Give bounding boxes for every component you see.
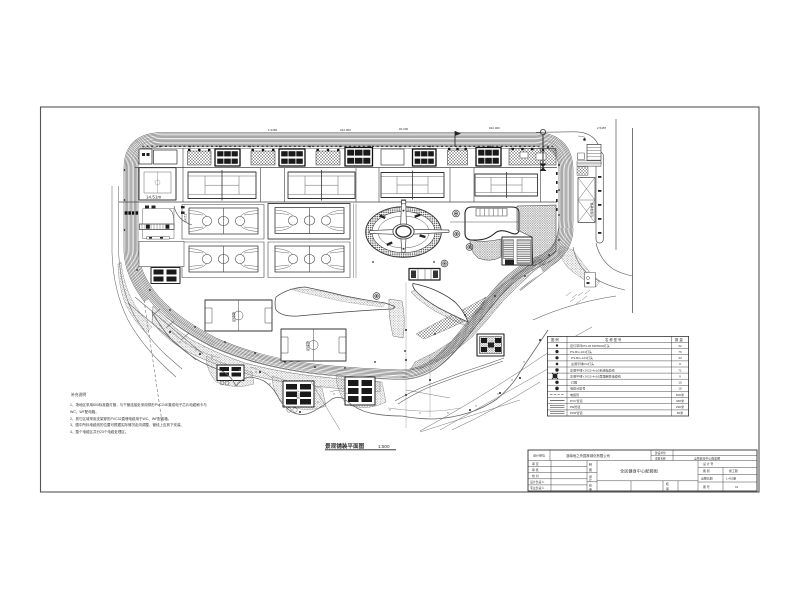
- svg-text:施工图: 施工图: [729, 468, 738, 473]
- svg-text:PE管道: PE管道: [570, 404, 580, 409]
- svg-text:出图日期: 出图日期: [701, 476, 713, 481]
- svg-text:名 称 型 号: 名 称 型 号: [605, 337, 622, 342]
- svg-text:左侧平绿PG灯头: 左侧平绿PG灯头: [571, 361, 594, 366]
- svg-text:审 核: 审 核: [532, 467, 539, 472]
- svg-text:460米: 460米: [676, 398, 684, 403]
- svg-text:图 例: 图 例: [551, 337, 559, 342]
- svg-text:图 号: 图 号: [703, 484, 710, 489]
- svg-text:PPR管道: PPR管道: [570, 410, 583, 415]
- svg-text:电缆分区号: 电缆分区号: [570, 386, 585, 391]
- svg-text:图 别: 图 别: [703, 468, 710, 473]
- svg-text:WC、WF配电箱。: WC、WF配电箱。: [70, 409, 99, 414]
- svg-text:足球场: 足球场: [305, 340, 310, 351]
- svg-text:数 量: 数 量: [675, 337, 683, 342]
- svg-text:设计负责人: 设计负责人: [530, 479, 545, 484]
- svg-text:景观铺装平面图: 景观铺装平面图: [324, 442, 365, 450]
- svg-text:审 定: 审 定: [532, 461, 539, 466]
- svg-text:14.51: 14.51: [184, 214, 188, 222]
- svg-text:灯殿: 灯殿: [571, 380, 577, 385]
- svg-text:33: 33: [678, 356, 682, 360]
- svg-text:核: 核: [666, 481, 669, 486]
- svg-text:#12.000: #12.000: [340, 128, 351, 132]
- svg-text:32: 32: [678, 344, 682, 348]
- svg-text:设计单位: 设计单位: [533, 453, 545, 458]
- svg-text:9: 9: [679, 374, 681, 378]
- svg-text:1.452册: 1.452册: [726, 477, 736, 481]
- svg-text:图: 图: [589, 468, 592, 472]
- svg-text:1.5482: 1.5482: [268, 128, 278, 132]
- svg-text:60米: 60米: [677, 410, 684, 415]
- svg-text:PVC管道: PVC管道: [570, 398, 583, 403]
- svg-text:3、图中所标电缆线的位置可根据实际情况走向调整，管线上应到下: 3、图中所标电缆线的位置可根据实际情况走向调整，管线上应到下安装。: [70, 422, 184, 427]
- svg-text:制: 制: [589, 462, 592, 467]
- svg-text:9: 9: [679, 362, 681, 366]
- svg-text:审: 审: [589, 486, 592, 491]
- svg-text:01: 01: [735, 485, 739, 489]
- svg-text:#22.000: #22.000: [489, 126, 500, 130]
- svg-text:71: 71: [678, 368, 682, 372]
- svg-text:4、整个电缆区共分23个电缆处理区。: 4、整个电缆区共分23个电缆处理区。: [70, 429, 128, 434]
- svg-text:14.51m: 14.51m: [146, 195, 161, 200]
- svg-text:设 计 号: 设 计 号: [703, 461, 713, 466]
- svg-text:补充说明: 补充说明: [71, 392, 86, 397]
- svg-text:15: 15: [678, 387, 682, 391]
- svg-text:足球场: 足球场: [231, 311, 236, 322]
- svg-text:审: 审: [666, 486, 669, 491]
- svg-text:项目名称: 项目名称: [655, 456, 666, 460]
- svg-text:1:500: 1:500: [378, 444, 390, 449]
- svg-text:无障碍坡道: 无障碍坡道: [589, 202, 594, 217]
- svg-text:浙南地之舟园林绿化有限公司: 浙南地之舟园林绿化有限公司: [566, 453, 610, 458]
- svg-text:全民健身中心配套图: 全民健身中心配套图: [620, 468, 658, 475]
- svg-text:建设单位: 建设单位: [655, 451, 666, 455]
- svg-text:足灯草坪PN-04 MP3000灯头: 足灯草坪PN-04 MP3000灯头: [570, 343, 610, 348]
- svg-text:#2.000: #2.000: [399, 127, 409, 131]
- svg-text:左侧平绿YJV22-4x10系统电缆线: 左侧平绿YJV22-4x10系统电缆线: [570, 367, 615, 372]
- svg-text:15: 15: [678, 381, 682, 385]
- svg-text:专业负责人: 专业负责人: [530, 485, 545, 490]
- svg-text:76: 76: [678, 350, 682, 354]
- svg-text:290米: 290米: [676, 404, 684, 409]
- svg-text:电缆管: 电缆管: [570, 392, 579, 397]
- svg-text:计: 计: [589, 477, 592, 482]
- svg-text:人行道: 人行道: [296, 390, 301, 399]
- svg-text:600米: 600米: [676, 392, 684, 397]
- svg-text:左侧平绿YJV22-4x16直埋串联电缆线: 左侧平绿YJV22-4x16直埋串联电缆线: [570, 373, 621, 378]
- svg-text:校 对: 校 对: [532, 473, 539, 478]
- svg-text:PS-BG-224灯头: PS-BG-224灯头: [570, 349, 592, 354]
- svg-text:2.5487: 2.5487: [597, 126, 607, 130]
- svg-text:1、场地区采用600标准路灯管，与干管连接处采用穿形PVC2: 1、场地区采用600标准路灯管，与干管连接处采用穿形PVC24E集成电子芯片电缆…: [70, 402, 207, 407]
- svg-text:PS-BG-124灯头: PS-BG-124灯头: [571, 355, 593, 360]
- svg-text:2、其它区域采用支架穿形PVC32直埋电缆用于WC、WF配电: 2、其它区域采用支架穿形PVC32直埋电缆用于WC、WF配电箱。: [70, 416, 171, 421]
- svg-text:全民健身中心配套图: 全民健身中心配套图: [694, 456, 720, 461]
